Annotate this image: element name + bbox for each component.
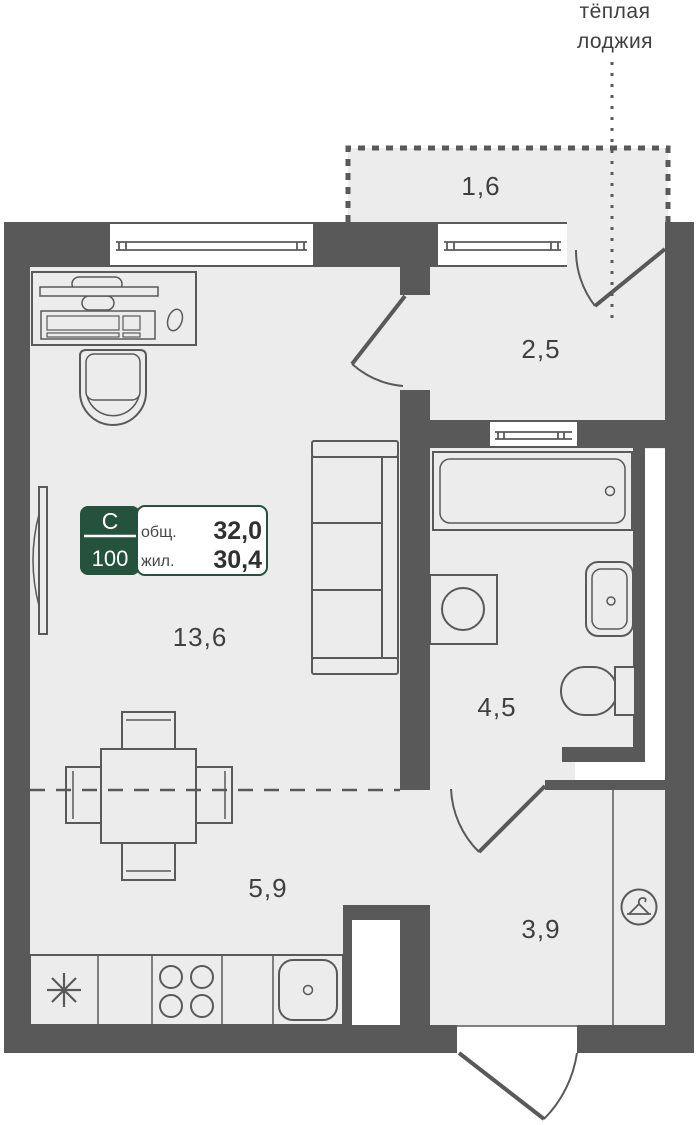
kitchen-counter <box>30 955 343 1025</box>
sofa-cushion <box>312 523 382 590</box>
badge-building-letter: С <box>102 508 119 534</box>
area-label-kitchen: 5,9 <box>248 873 287 903</box>
toilet-bowl <box>561 667 617 715</box>
window-hallway <box>438 224 567 265</box>
monitor-screen <box>40 287 158 296</box>
shaft-kitchen-void <box>352 920 400 1025</box>
sofa-cushion <box>312 457 382 523</box>
sofa-armrest-bottom <box>312 658 398 674</box>
bathroom-sink <box>586 562 633 636</box>
wall-interior-main <box>400 390 430 790</box>
dining-table <box>101 749 196 843</box>
area-label-bathroom: 4,5 <box>477 692 516 722</box>
dining-chair-bottom <box>122 842 175 880</box>
window-bathroom-transom <box>490 422 577 446</box>
sofa-backrest <box>382 457 398 658</box>
apartment-badge: С 100 общ. 32,0 жил. 30,4 <box>80 506 267 575</box>
dining-chair-left <box>66 767 102 823</box>
fridge-icon <box>47 973 81 1007</box>
badge-unit-number: 100 <box>92 546 129 571</box>
area-label-hallway: 2,5 <box>521 334 560 364</box>
desk-chair <box>80 350 146 425</box>
badge-living-value: 30,4 <box>213 546 262 574</box>
wall-interior-top <box>400 267 430 295</box>
floor-plan: тёплая лоджия 1,6 2,5 13,6 4,5 5,9 3,9 С… <box>0 0 696 1125</box>
sofa-armrest-top <box>312 441 398 457</box>
bathtub <box>433 452 632 530</box>
window-living <box>110 224 313 265</box>
kitchen-sink <box>279 960 337 1020</box>
dining-chair-right <box>196 767 232 823</box>
wall-bottom-right <box>577 1025 694 1053</box>
loggia-floor <box>348 148 668 225</box>
loggia-header-line2: лоджия <box>577 30 653 53</box>
badge-total-value: 32,0 <box>213 517 262 545</box>
toilet <box>561 667 635 715</box>
area-label-loggia: 1,6 <box>461 171 500 201</box>
entrance-threshold <box>457 1026 577 1053</box>
badge-living-label: жил. <box>141 553 174 570</box>
desk <box>32 272 196 345</box>
sofa-cushion <box>312 590 382 658</box>
wall-bath-bottom <box>562 747 645 762</box>
area-label-corridor: 3,9 <box>521 914 560 944</box>
toilet-tank <box>615 667 635 715</box>
monitor-base <box>82 296 114 310</box>
area-label-living: 13,6 <box>173 622 228 652</box>
sofa <box>312 441 398 674</box>
washing-machine <box>430 575 497 644</box>
shaft-bath-bottom <box>575 762 645 780</box>
bathtub-drain <box>606 487 615 496</box>
shaft-bath-right <box>645 449 665 780</box>
wall-corridor-top <box>545 780 665 790</box>
loggia-header-line1: тёплая <box>580 0 651 23</box>
badge-total-label: общ. <box>141 524 177 541</box>
dining-chair-top <box>122 712 175 752</box>
wall-bottom-left <box>4 1025 457 1053</box>
wall-left <box>4 267 30 1053</box>
wall-right <box>665 222 694 1053</box>
